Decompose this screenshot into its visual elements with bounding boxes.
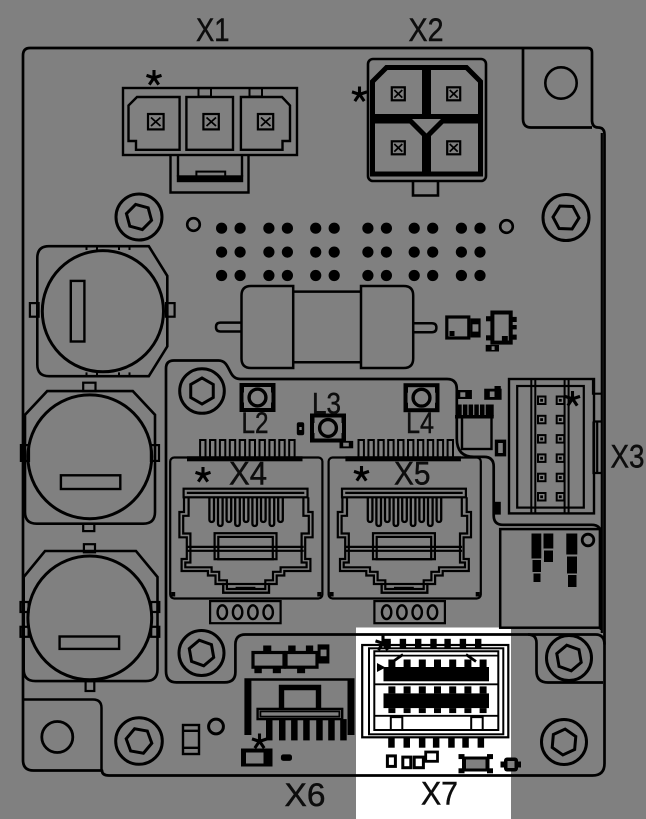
svg-text:X6: X6 <box>285 777 326 813</box>
svg-text:X7: X7 <box>421 776 458 812</box>
svg-text:L3: L3 <box>312 388 341 421</box>
svg-text:X5: X5 <box>394 456 431 492</box>
svg-text:L2: L2 <box>242 407 269 440</box>
svg-text:X2: X2 <box>409 12 444 48</box>
svg-text:X4: X4 <box>229 456 267 492</box>
svg-text:X3: X3 <box>611 439 645 475</box>
svg-text:L4: L4 <box>406 407 434 440</box>
svg-text:X1: X1 <box>196 12 230 48</box>
